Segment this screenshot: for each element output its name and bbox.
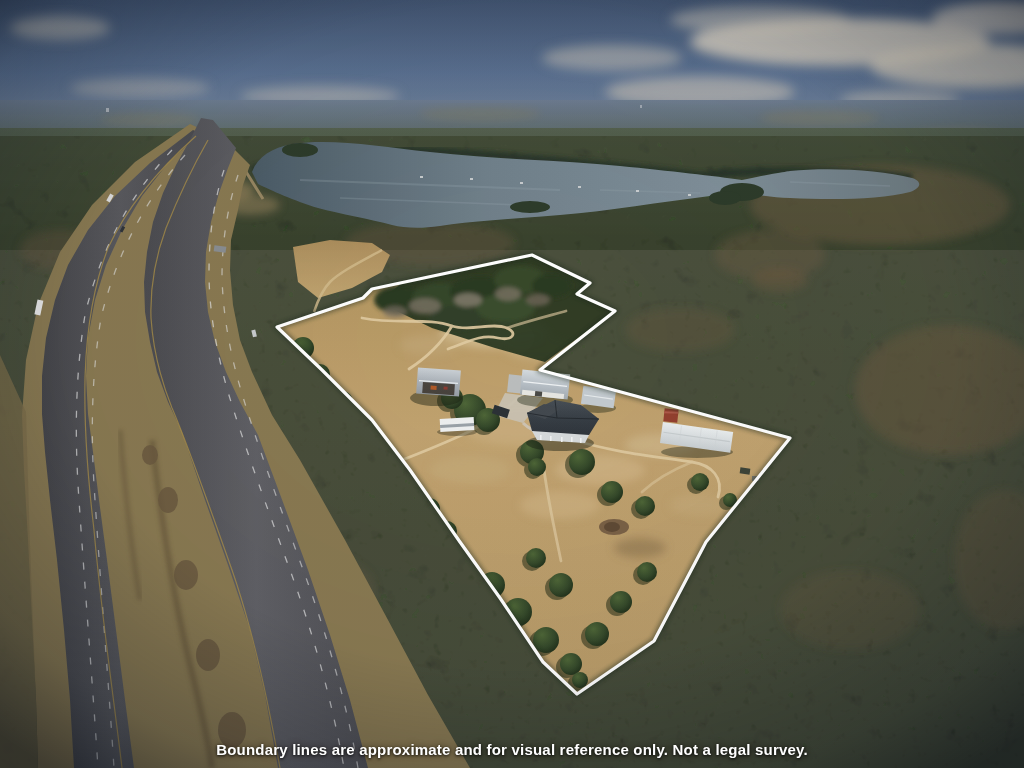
disclaimer-caption: Boundary lines are approximate and for v…: [0, 741, 1024, 758]
vignette: [0, 0, 1024, 768]
aerial-property-photo: Boundary lines are approximate and for v…: [0, 0, 1024, 768]
scene-canvas: [0, 0, 1024, 768]
